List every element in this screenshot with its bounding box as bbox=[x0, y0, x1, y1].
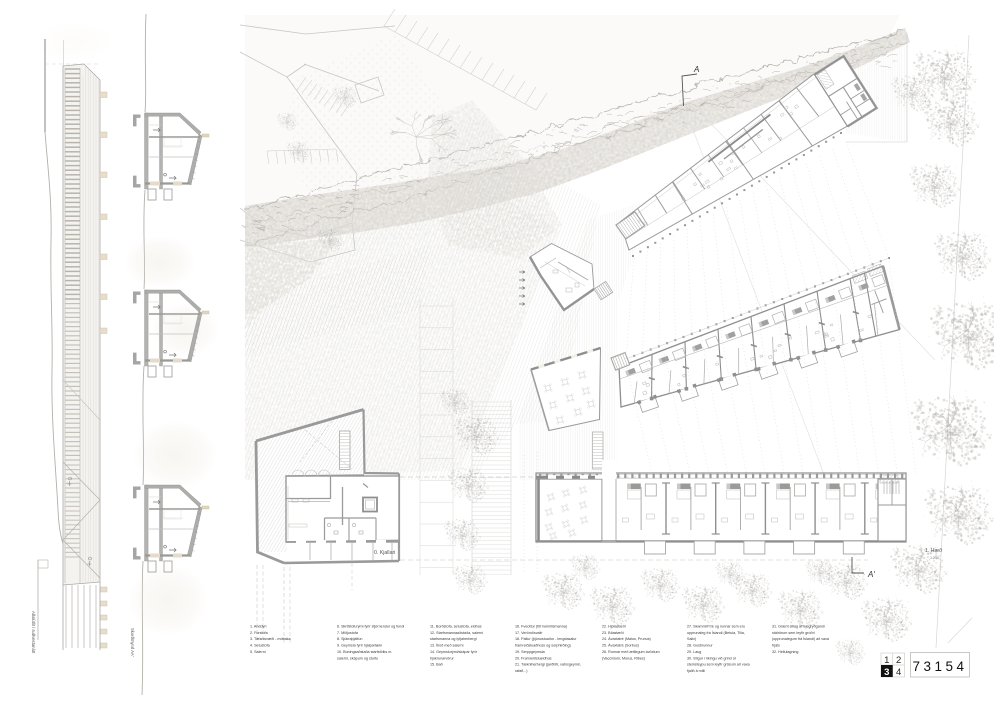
svg-text:32. Hellulagning: 32. Hellulagning bbox=[772, 650, 798, 654]
svg-text:3: 3 bbox=[884, 667, 889, 678]
svg-text:rafafl...): rafafl...) bbox=[515, 669, 528, 673]
svg-text:Skurðmynd AA′: Skurðmynd AA′ bbox=[130, 628, 135, 657]
svg-text:framreiðsluaðhúss og sorphirði: framreiðsluaðhúss og sorphirðing) bbox=[515, 643, 571, 648]
svg-text:7. Miðjustofa: 7. Miðjustofa bbox=[337, 630, 359, 635]
svg-text:3. Tæknisvæði - móttaka: 3. Tæknisvæði - móttaka bbox=[250, 636, 291, 641]
svg-text:frjáls: frjáls bbox=[772, 644, 780, 648]
svg-text:A′: A′ bbox=[867, 570, 875, 579]
svg-text:A: A bbox=[693, 65, 699, 74]
svg-text:31. Grænt sillag af hægryðgand: 31. Grænt sillag af hægryðgandi bbox=[772, 624, 825, 629]
svg-text:27. Skammlíf tré og runnar sem: 27. Skammlíf tré og runnar sem eru bbox=[687, 625, 745, 629]
svg-text:17. Verönd/svalir: 17. Verönd/svalir bbox=[515, 631, 543, 635]
svg-text:18. Pallur (þjónustuaður - len: 18. Pallur (þjónustuaður - lengdasalur bbox=[515, 636, 577, 641]
svg-text:13. Íbúð með salerni: 13. Íbúð með salerni bbox=[430, 643, 464, 648]
svg-text:9. Geymsla fyrir hjálpartæki: 9. Geymsla fyrir hjálpartæki bbox=[337, 644, 382, 648]
svg-text:1: 1 bbox=[884, 655, 889, 666]
svg-text:12. Starfsmannaaðstaða, salern: 12. Starfsmannaaðstaða, salerni bbox=[430, 630, 483, 635]
svg-text:22. Hjólastæði: 22. Hjólastæði bbox=[602, 624, 626, 629]
svg-text:4. Setustofa: 4. Setustofa bbox=[250, 644, 271, 648]
svg-text:10. Búningsaðstaða starfsfólks: 10. Búningsaðstaða starfsfólks m. bbox=[337, 649, 392, 654]
svg-text:20. Framreiðslueldhús: 20. Framreiðslueldhús bbox=[515, 655, 552, 660]
svg-text:fjalið á milli: fjalið á milli bbox=[687, 668, 705, 673]
svg-text:15. Bað: 15. Bað bbox=[430, 662, 443, 667]
svg-text:16. Þveottur (föt heimilismann: 16. Þveottur (föt heimilismanna) bbox=[515, 625, 567, 629]
svg-text:(upprunalegum frá Íslandi) að: (upprunalegum frá Íslandi) að vaxa bbox=[772, 636, 830, 641]
svg-text:14. Geymslurými/skápar fyrir: 14. Geymslurými/skápar fyrir bbox=[430, 650, 478, 654]
svg-text:4: 4 bbox=[896, 667, 901, 678]
svg-text:salerni, skápum og sturtu: salerni, skápum og sturtu bbox=[337, 656, 378, 660]
svg-text:23. Bílastæði: 23. Bílastæði bbox=[602, 630, 624, 635]
svg-text:8. Sjúkraþjálfun: 8. Sjúkraþjálfun bbox=[337, 637, 362, 641]
svg-text:6. Skrifstofurými fyrir stjór: 6. Skrifstofurými fyrir stjórnendur og f… bbox=[337, 625, 404, 629]
svg-text:1. Anddyri: 1. Anddyri bbox=[250, 625, 267, 629]
svg-text:(Vaccinium, Morus, Ribes): (Vaccinium, Morus, Ribes) bbox=[602, 656, 645, 660]
svg-text:2. Forstofa: 2. Forstofa bbox=[250, 631, 269, 635]
svg-text:Salix): Salix) bbox=[687, 637, 696, 641]
svg-text:steinsteypu sem leyfir grösum: steinsteypu sem leyfir grösum að vaxa bbox=[687, 662, 751, 667]
svg-text:hjúkrunarvörur: hjúkrunarvörur bbox=[430, 656, 455, 660]
svg-text:11. Borðstofa, setustofa, eldh: 11. Borðstofa, setustofa, eldhús bbox=[430, 624, 482, 629]
svg-text:19. Serppgeymsla: 19. Serppgeymsla bbox=[515, 650, 546, 654]
svg-text:24. Ávaxtatré (Malus, Prunus): 24. Ávaxtatré (Malus, Prunus) bbox=[602, 637, 651, 641]
svg-text:25. Ávaxtatré (Sorbus): 25. Ávaxtatré (Sorbus) bbox=[602, 644, 639, 648]
svg-text:1:250: 1:250 bbox=[930, 556, 939, 560]
svg-text:73154: 73154 bbox=[912, 659, 967, 674]
svg-text:stálrörum sem leyfir gróðri: stálrörum sem leyfir gróðri bbox=[772, 630, 815, 635]
svg-text:30. Stígur í líkingu við grind: 30. Stígur í líkingu við grind úr bbox=[687, 655, 737, 660]
svg-text:2: 2 bbox=[896, 655, 901, 666]
svg-text:upprunaleg frá Íslandi (Betula: upprunaleg frá Íslandi (Betula, Tilia, bbox=[687, 631, 745, 635]
svg-text:1. Hæð: 1. Hæð bbox=[925, 547, 942, 554]
svg-text:starfsmanna og lyfjaherbergi: starfsmanna og lyfjaherbergi bbox=[430, 637, 477, 641]
svg-text:5. Salerni: 5. Salerni bbox=[250, 650, 266, 654]
svg-text:0. Kjallari: 0. Kjallari bbox=[374, 550, 395, 556]
svg-text:29. Laug: 29. Laug bbox=[687, 650, 701, 654]
svg-text:26. Runnar með ætilegum ávöxtu: 26. Runnar með ætilegum ávöxtum bbox=[602, 649, 660, 654]
svg-text:28. Gosbrunnur: 28. Gosbrunnur bbox=[687, 644, 713, 648]
svg-text:Aðalútlit í suðvestanátt: Aðalútlit í suðvestanátt bbox=[31, 611, 36, 654]
svg-text:21. Tækniherbergi (jarðhiti, v: 21. Tækniherbergi (jarðhiti, vatnsgeymir… bbox=[515, 662, 581, 667]
